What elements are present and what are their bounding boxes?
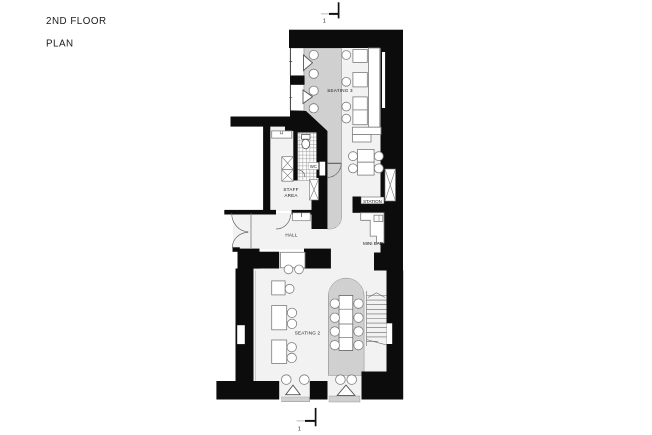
svg-text:HALL: HALL: [285, 233, 298, 238]
svg-text:AREA: AREA: [284, 193, 298, 198]
svg-text:1: 1: [298, 427, 301, 433]
svg-text:2ND FLOOR: 2ND FLOOR: [46, 16, 107, 27]
svg-text:WC: WC: [310, 164, 317, 169]
svg-text:SEATING 2: SEATING 2: [295, 330, 321, 335]
svg-text:1: 1: [323, 19, 326, 25]
svg-text:PLAN: PLAN: [46, 39, 74, 50]
svg-text:STAFF: STAFF: [283, 187, 298, 192]
svg-text:SEATING 3: SEATING 3: [327, 88, 353, 93]
svg-text:STATION: STATION: [363, 199, 382, 204]
svg-text:MINI BAR: MINI BAR: [363, 241, 384, 246]
